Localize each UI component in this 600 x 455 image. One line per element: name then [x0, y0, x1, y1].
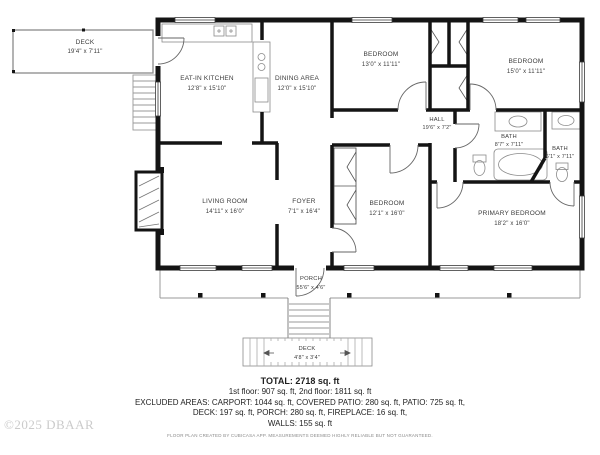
room-label-bedroom1-name: BEDROOM — [364, 51, 399, 58]
room-label-porch-dims: 55'6" x 4'6" — [297, 285, 326, 291]
room-label-deck-bottom-name: DECK — [299, 346, 316, 352]
excluded-areas-text-1: EXCLUDED AREAS: CARPORT: 1044 sq. ft, CO… — [0, 398, 600, 409]
room-label-deck-top-dims: 19'4" x 7'11" — [67, 49, 102, 55]
porch-structure — [160, 270, 580, 298]
watermark-text: ©2025 DBAAR — [4, 417, 94, 433]
room-label-bedroom2-dims: 15'0" x 11'11" — [507, 69, 545, 75]
room-label-porch-name: PORCH — [300, 276, 322, 282]
room-label-living-name: LIVING ROOM — [202, 198, 248, 205]
floor-plan-page: DECK 19'4" x 7'11" EAT-IN KITCHEN 12'8" … — [0, 0, 600, 450]
room-label-bath2-dims: 6'1" x 7'11" — [546, 154, 575, 160]
room-label-hall-dims: 19'6" x 7'2" — [423, 125, 452, 131]
room-label-bedroom2-name: BEDROOM — [509, 58, 544, 65]
room-label-bedroom1-dims: 13'0" x 11'11" — [362, 62, 400, 68]
fireplace — [136, 167, 164, 235]
room-label-kitchen-name: EAT-IN KITCHEN — [180, 75, 234, 82]
room-label-foyer-dims: 7'1" x 16'4" — [288, 209, 320, 215]
porch-stairs — [288, 298, 330, 338]
disclaimer-text: FLOOR PLAN CREATED BY CUBICASA APP. MEAS… — [0, 433, 600, 438]
room-label-living-dims: 14'11" x 16'0" — [206, 209, 245, 215]
room-label-dining-name: DINING AREA — [275, 75, 320, 82]
room-label-bedroom3-dims: 12'1" x 16'0" — [369, 211, 405, 217]
room-label-bedroom3-name: BEDROOM — [370, 200, 405, 207]
kitchen-fixtures — [162, 24, 270, 112]
deck-bottom-structure — [243, 338, 372, 366]
room-label-deck-bottom-dims: 4'8" x 3'4" — [294, 355, 320, 361]
room-label-foyer-name: FOYER — [292, 198, 315, 205]
room-label-bath1-name: BATH — [501, 134, 517, 140]
room-label-deck-top-name: DECK — [76, 39, 95, 46]
room-label-bath1-dims: 8'7" x 7'11" — [495, 142, 524, 148]
room-label-dining-dims: 12'0" x 15'10" — [277, 86, 316, 92]
total-area-text: TOTAL: 2718 sq. ft — [0, 376, 600, 387]
floor-areas-text: 1st floor: 907 sq. ft, 2nd floor: 1811 s… — [0, 387, 600, 398]
room-label-primary-dims: 18'2" x 16'0" — [494, 221, 530, 227]
room-label-kitchen-dims: 12'8" x 15'10" — [187, 86, 226, 92]
room-label-bath2-name: BATH — [552, 146, 568, 152]
room-label-hall-name: HALL — [429, 117, 445, 123]
room-label-primary-name: PRIMARY BEDROOM — [478, 210, 546, 217]
